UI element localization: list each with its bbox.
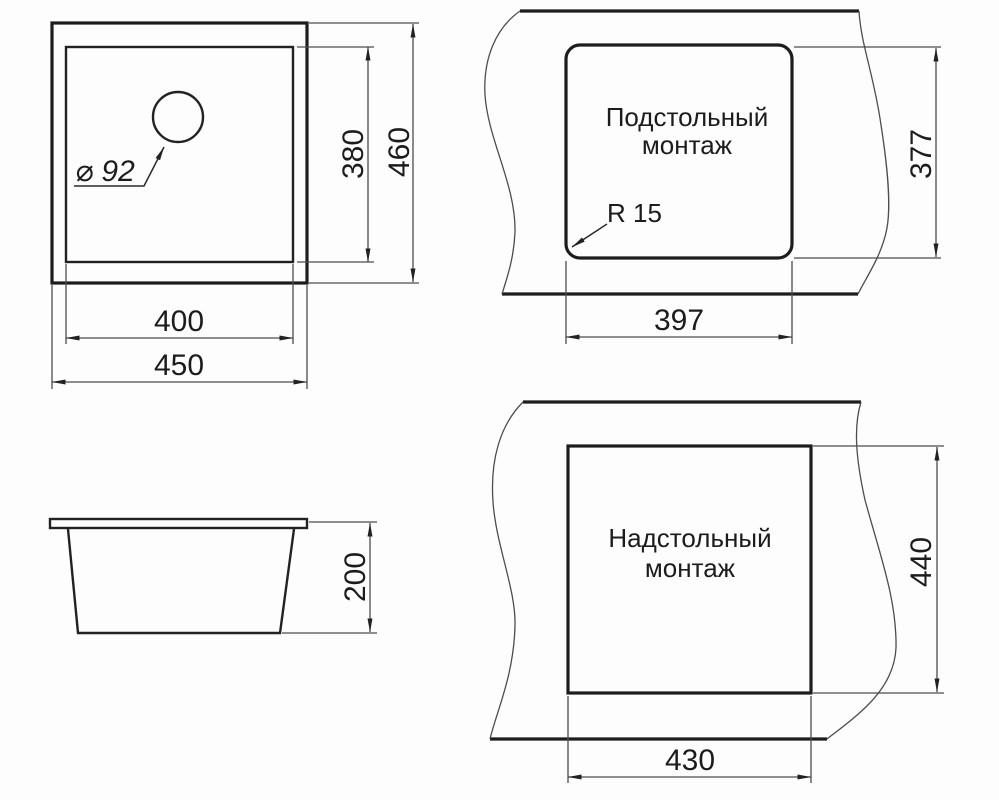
radius-leader-line xyxy=(572,224,607,247)
sink-outer-rect xyxy=(52,23,307,283)
dim-undermount-depth-label: 377 xyxy=(905,129,938,179)
dim-inner-width-label: 400 xyxy=(154,305,204,338)
drain-diameter-label: ⌀ 92 xyxy=(75,155,135,188)
drain-hole-circle xyxy=(153,92,203,142)
dim-side-height: 200 xyxy=(282,522,377,633)
break-line-right xyxy=(858,11,889,294)
radius-label: R 15 xyxy=(607,198,662,228)
sink-dimension-drawing: ⌀ 92 380 460 400 450 xyxy=(0,0,999,800)
top-view: ⌀ 92 380 460 400 450 xyxy=(52,23,419,389)
dim-undermount-width: 397 xyxy=(566,261,792,344)
dim-inner-depth-label: 380 xyxy=(337,129,370,179)
overmount-title-line2: монтаж xyxy=(645,553,736,583)
dim-undermount-width-label: 397 xyxy=(654,304,704,337)
break-line-left xyxy=(490,402,523,739)
overmount-title-line1: Надстольный xyxy=(608,523,771,553)
dim-undermount-depth: 377 xyxy=(794,47,941,258)
sink-rim-profile xyxy=(50,519,307,528)
undermount-view: Подстольный монтаж R 15 397 377 xyxy=(485,11,941,344)
break-line-right xyxy=(827,402,896,739)
dim-outer-depth-label: 460 xyxy=(383,127,416,177)
dim-overmount-width-label: 430 xyxy=(665,744,715,777)
dim-side-height-label: 200 xyxy=(339,552,372,602)
undermount-title-line2: монтаж xyxy=(642,130,733,160)
dim-inner-width: 400 xyxy=(66,264,293,344)
sink-bowl-profile xyxy=(68,529,294,633)
break-line-left xyxy=(485,11,520,294)
overmount-view: Надстольный монтаж 440 430 xyxy=(490,402,944,783)
dim-overmount-depth-label: 440 xyxy=(905,537,938,587)
side-view: 200 xyxy=(50,519,377,633)
undermount-title-line1: Подстольный xyxy=(606,102,769,132)
dim-overmount-depth: 440 xyxy=(813,446,944,693)
drawing-canvas: ⌀ 92 380 460 400 450 xyxy=(0,0,999,800)
dim-outer-width-label: 450 xyxy=(154,349,204,382)
